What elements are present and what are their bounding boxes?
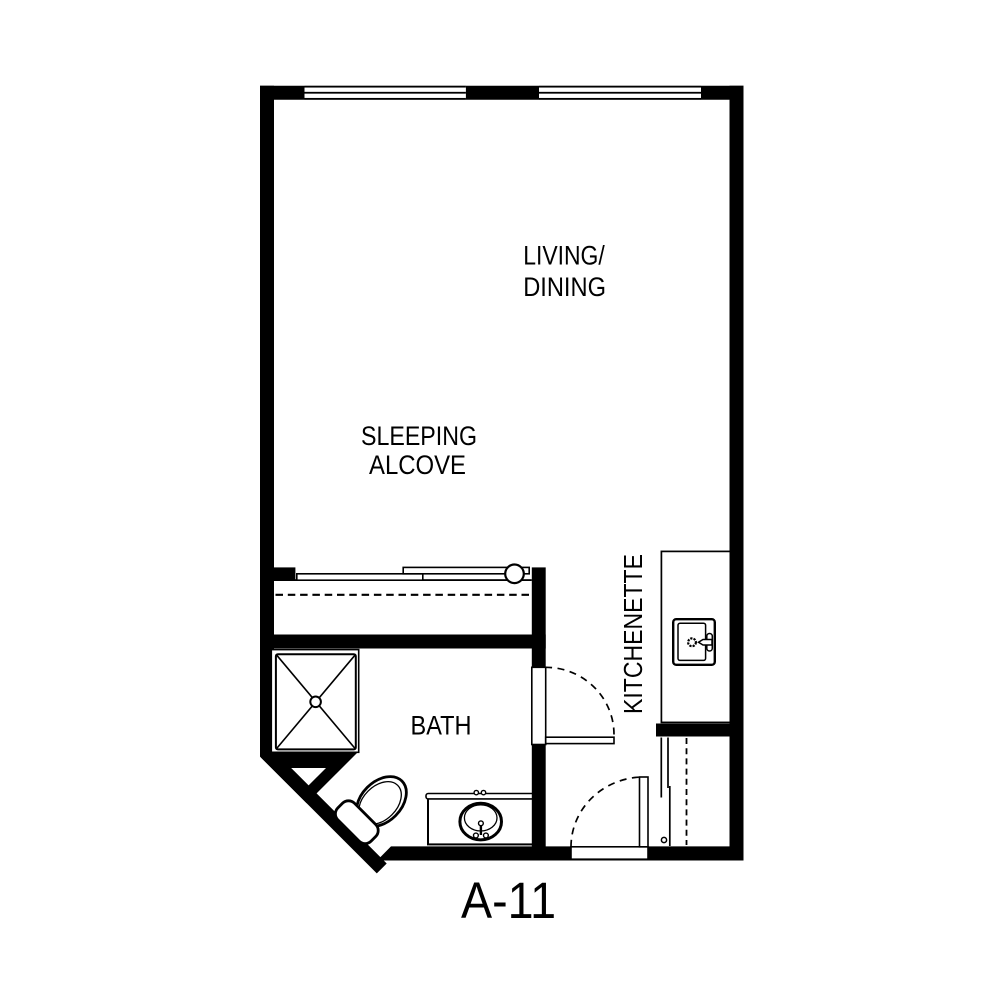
svg-text:BATH: BATH — [411, 710, 472, 740]
svg-text:LIVING/: LIVING/ — [523, 241, 605, 271]
svg-text:KITCHENETTE: KITCHENETTE — [618, 554, 648, 714]
svg-text:ALCOVE: ALCOVE — [369, 450, 466, 480]
svg-text:DINING: DINING — [523, 272, 606, 302]
svg-text:A-11: A-11 — [461, 872, 556, 929]
svg-text:SLEEPING: SLEEPING — [361, 421, 477, 451]
